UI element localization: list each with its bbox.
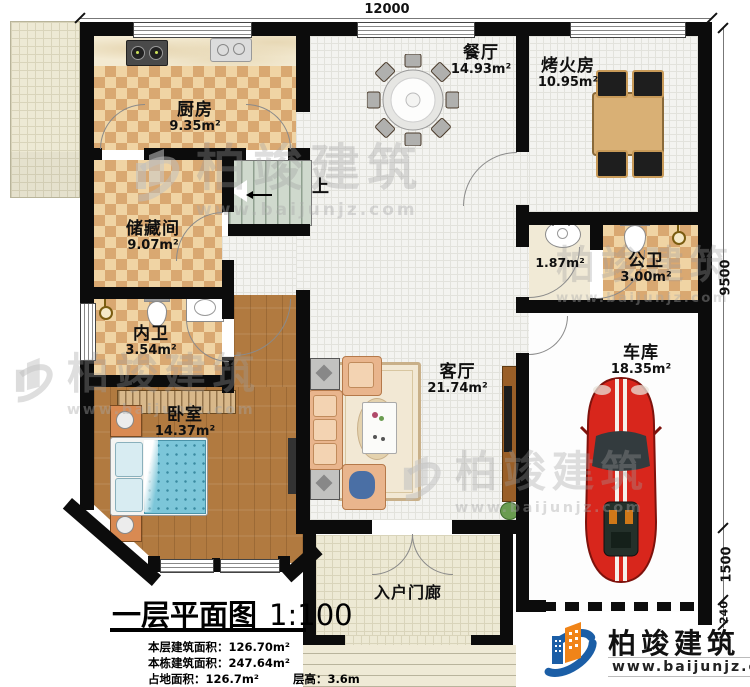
- room-label-fire-room: 烤火房10.95m²: [520, 57, 616, 91]
- dimension-line-right: [723, 28, 724, 628]
- stat-land-area-height: 占地面积：126.7m² 层高：3.6m: [148, 671, 360, 687]
- stair-arrowhead-icon: [246, 191, 253, 199]
- wall-segment: [500, 534, 513, 645]
- wall-segment: [516, 300, 712, 313]
- stair-arrow: [250, 194, 272, 196]
- dimension-right-porch-label: 1500: [720, 541, 735, 589]
- stairs-up-label: 上: [312, 177, 330, 197]
- stat-building-area: 本栋建筑面积：247.64m²: [148, 655, 290, 671]
- car-icon: [578, 372, 664, 588]
- window: [570, 22, 686, 38]
- ceiling-lamp-icon: [99, 306, 113, 320]
- wall-segment: [144, 148, 246, 160]
- stove-icon: [126, 40, 168, 66]
- chair: [632, 70, 664, 98]
- room-label-garage: 车库18.35m²: [596, 344, 686, 378]
- wall-segment: [94, 287, 234, 299]
- chair: [632, 150, 664, 178]
- brand-website: www.baijunjz.com: [608, 657, 750, 677]
- wall-segment: [590, 212, 603, 250]
- room-label-bedroom: 卧室14.37m²: [140, 406, 230, 440]
- room-label-dining: 餐厅14.93m²: [436, 44, 526, 78]
- ceiling-lamp-icon: [672, 231, 686, 245]
- wall-segment: [296, 22, 310, 112]
- wall-segment: [296, 290, 310, 520]
- window: [133, 22, 252, 38]
- bay-window: [160, 559, 214, 573]
- wall-segment: [452, 520, 516, 534]
- nightstand: [110, 405, 142, 437]
- armchair: [342, 356, 382, 396]
- wall-segment: [80, 22, 94, 510]
- side-table: [310, 358, 340, 390]
- room-label-storage: 储藏间9.07m²: [108, 220, 198, 254]
- wall-segment: [222, 299, 234, 319]
- wall-segment: [228, 224, 310, 236]
- room-label-kitchen: 厨房9.35m²: [150, 101, 240, 135]
- plan-scale: 1:100: [269, 598, 353, 632]
- tv-icon: [504, 386, 512, 452]
- terrace: [10, 21, 80, 198]
- wall-segment: [698, 22, 712, 625]
- wall-segment: [94, 375, 234, 387]
- room-label-living-room: 客厅21.74m²: [410, 363, 505, 397]
- wall-segment: [94, 148, 102, 160]
- wall-segment: [288, 148, 310, 160]
- dimension-right-main-label: 9500: [719, 254, 734, 302]
- room-label-porch: 入户门廊: [360, 584, 456, 602]
- wall-segment: [296, 520, 372, 534]
- wash-basin-icon: [545, 221, 581, 248]
- chair: [596, 150, 628, 178]
- wall-segment: [516, 353, 529, 612]
- wall-segment: [516, 212, 712, 225]
- brand-name: 柏竣建筑: [608, 622, 740, 662]
- dimension-top-label: 12000: [352, 2, 422, 17]
- wall-segment: [471, 635, 513, 645]
- armchair: [342, 464, 386, 510]
- window: [357, 22, 475, 38]
- coffee-table: [362, 402, 397, 454]
- bay-window: [220, 559, 280, 573]
- brand-logo-icon: [538, 616, 604, 680]
- kitchen-sink-icon: [210, 38, 252, 62]
- bedroom-tv-icon: [288, 438, 296, 494]
- room-label-inner-bath: 内卫3.54m²: [106, 325, 196, 359]
- room-label-wash-area: 1.87m²: [528, 256, 592, 270]
- title-underline: [110, 628, 306, 632]
- wall-segment: [303, 635, 345, 645]
- wall-segment: [516, 225, 529, 247]
- porch-floor-gap: [345, 635, 471, 645]
- fire-room-table: [592, 92, 664, 156]
- side-table: [310, 468, 340, 500]
- garage-door-dashed: [542, 602, 698, 611]
- kitchen-counter: [94, 36, 296, 69]
- floor-plan-canvas: 12000 9500 1500 240 上: [0, 0, 750, 687]
- sofa: [308, 390, 343, 470]
- bed: [110, 437, 208, 516]
- wall-segment: [222, 160, 234, 212]
- room-label-public-bath: 公卫3.00m²: [610, 252, 682, 286]
- window: [80, 303, 96, 361]
- stat-floor-area: 本层建筑面积：126.70m²: [148, 639, 290, 655]
- dimension-line-top: [80, 18, 712, 19]
- wall-segment: [148, 556, 160, 572]
